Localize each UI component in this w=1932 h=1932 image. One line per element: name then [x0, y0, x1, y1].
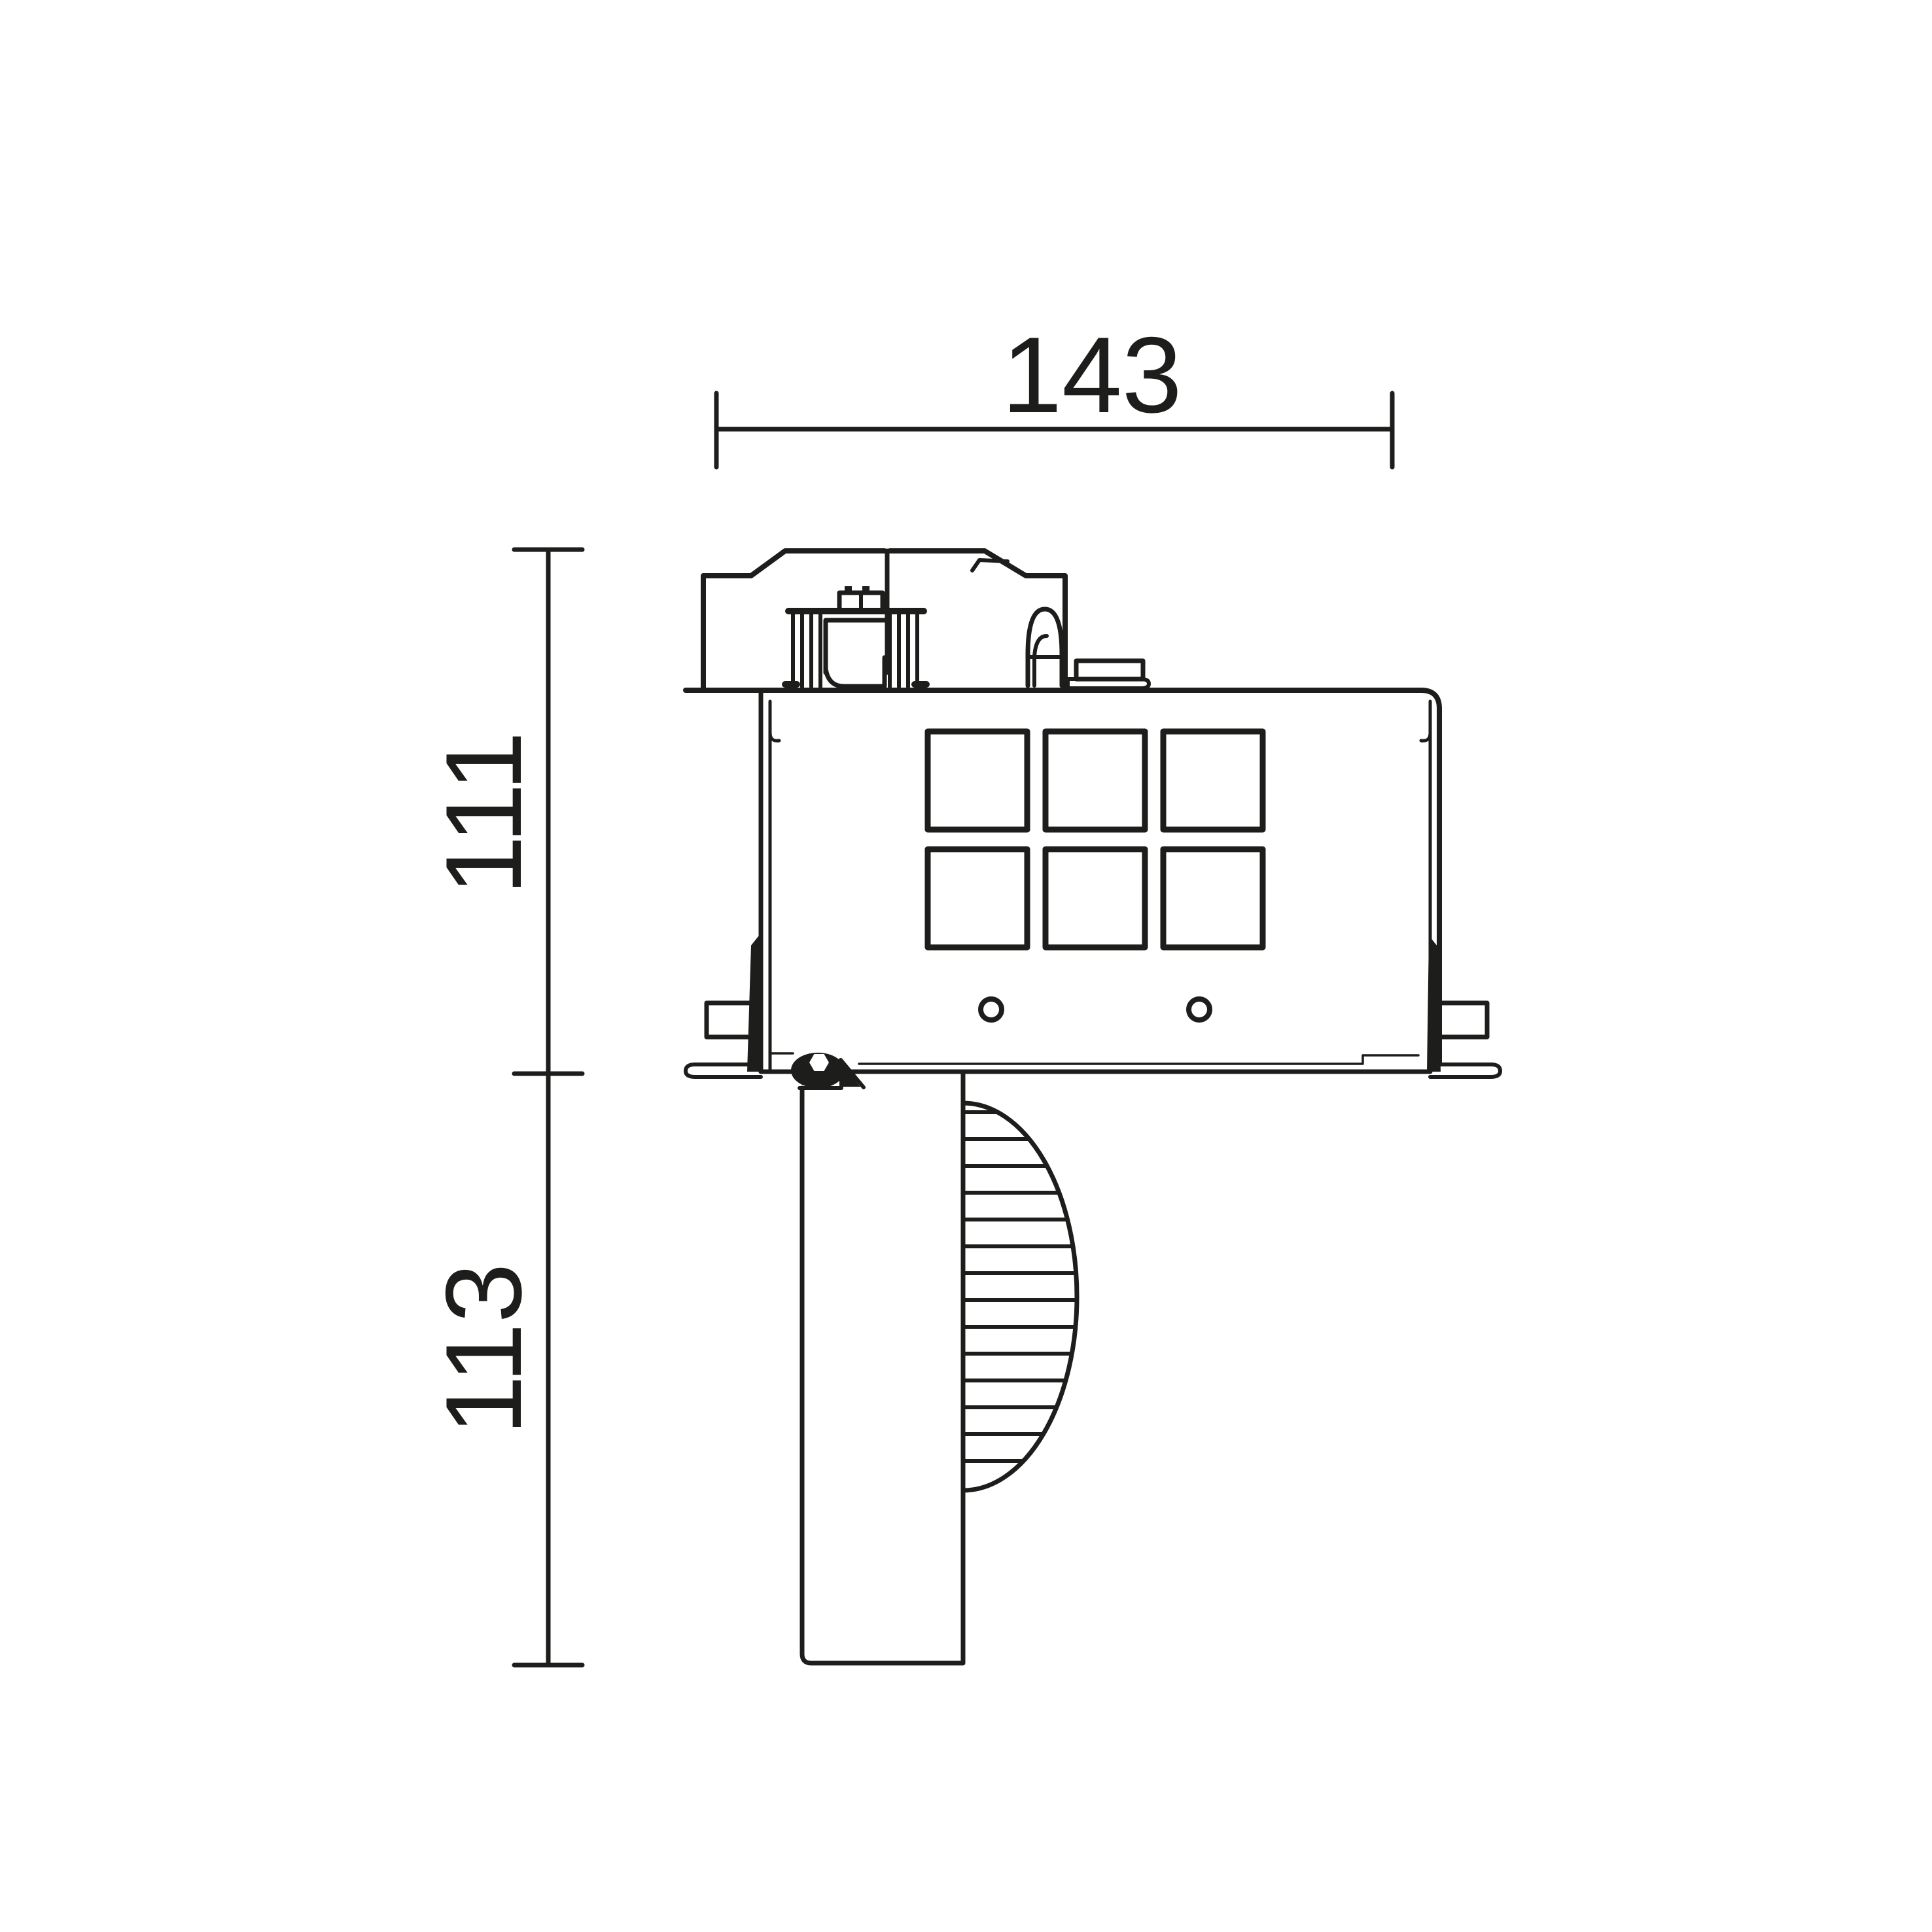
- connector-block: [1068, 661, 1149, 688]
- louvre-square: [1045, 731, 1145, 830]
- recessed-spotlight-dimension-drawing: 143 111 113: [0, 0, 1932, 1932]
- left-spring-hook: [770, 705, 779, 741]
- louvre-square: [928, 849, 1027, 947]
- louvre-square-grid: [928, 731, 1263, 947]
- gear-box-clip: [972, 560, 1008, 571]
- width-dimension: 143: [716, 315, 1392, 467]
- technical-drawing-page: 143 111 113: [0, 0, 1932, 1932]
- upper-height-dimension-label: 111: [423, 731, 544, 896]
- louvre-square: [1045, 849, 1145, 947]
- lamp-body: [802, 1073, 963, 1663]
- screw-hole: [981, 999, 1002, 1020]
- gear-box: [703, 551, 1149, 690]
- right-spring-hook: [1421, 705, 1430, 741]
- mounting-box: [686, 690, 1500, 1077]
- cable-dome: [1028, 609, 1062, 686]
- width-dimension-label: 143: [1002, 315, 1182, 435]
- right-trim-lip: [1430, 1064, 1500, 1077]
- box-top-and-right-edge: [686, 690, 1439, 1064]
- height-dimensions: 111 113: [423, 550, 582, 1665]
- lamp-head: [791, 1053, 1081, 1663]
- lower-height-dimension-label: 113: [423, 1263, 544, 1435]
- ceiling-line-right: [859, 1055, 1418, 1064]
- screw-hole: [1189, 999, 1210, 1020]
- terminal-block: [839, 586, 883, 611]
- louvre-square: [1163, 731, 1263, 830]
- lens: [959, 1103, 1081, 1490]
- louvre-square: [1163, 849, 1263, 947]
- louvre-square: [928, 731, 1027, 830]
- right-fixing-tab: [1435, 1003, 1487, 1037]
- lens-hatching: [959, 1112, 1081, 1461]
- socket-cup: [826, 620, 887, 686]
